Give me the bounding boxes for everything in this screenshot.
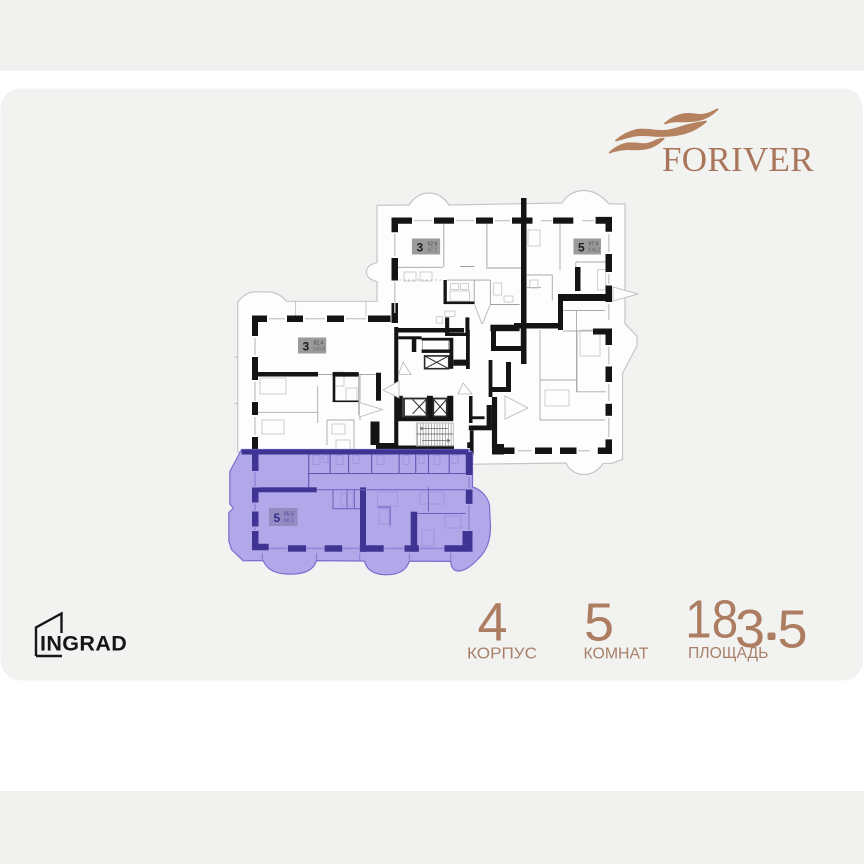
- svg-text:90.1: 90.1: [284, 518, 294, 524]
- svg-text:82.4: 82.4: [314, 340, 324, 346]
- svg-text:КОРПУС: КОРПУС: [467, 646, 537, 663]
- svg-text:3: 3: [303, 339, 310, 353]
- svg-text:INGRAD: INGRAD: [40, 632, 127, 656]
- svg-text:5: 5: [274, 511, 281, 525]
- svg-text:97.9: 97.9: [589, 241, 599, 247]
- svg-text:ПЛОЩАДЬ: ПЛОЩАДЬ: [688, 645, 769, 662]
- svg-text:5: 5: [578, 240, 585, 254]
- svg-text:5: 5: [778, 599, 808, 659]
- svg-text:97.2: 97.2: [428, 248, 438, 254]
- svg-text:3: 3: [417, 240, 424, 254]
- svg-text:204.2: 204.2: [588, 248, 601, 254]
- svg-text:4: 4: [477, 593, 507, 653]
- svg-text:143.8: 143.8: [313, 347, 326, 353]
- svg-text:85.5: 85.5: [284, 512, 294, 518]
- svg-text:5: 5: [584, 593, 614, 653]
- svg-text:52.9: 52.9: [428, 241, 438, 247]
- svg-text:18: 18: [685, 589, 738, 650]
- svg-text:КОМНАТ: КОМНАТ: [584, 646, 650, 663]
- svg-text:FORIVER: FORIVER: [662, 140, 814, 179]
